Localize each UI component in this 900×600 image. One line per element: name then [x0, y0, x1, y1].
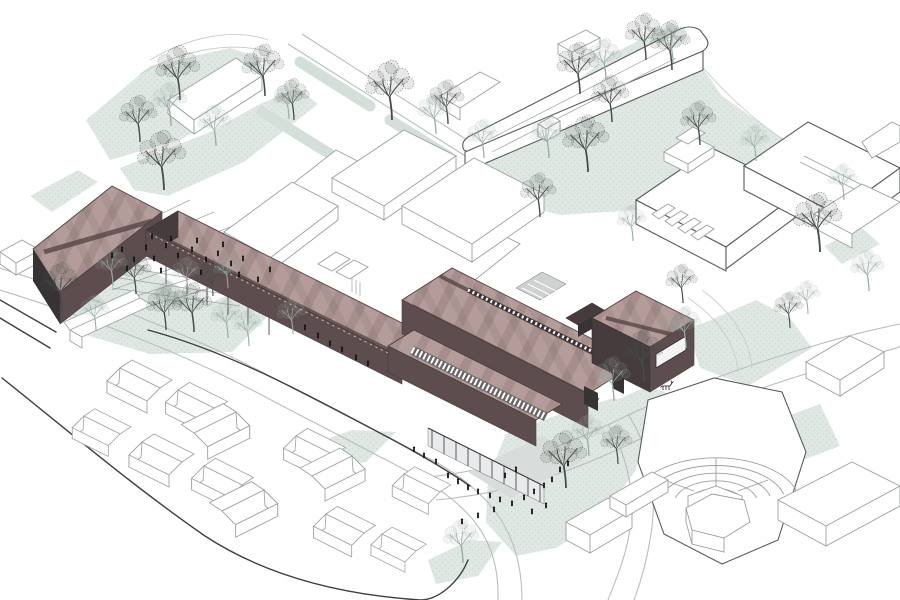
person-figure: [151, 234, 153, 240]
person-figure: [457, 479, 459, 485]
person-figure: [269, 267, 271, 273]
person-figure: [523, 495, 525, 501]
west-lane-b: [0, 318, 50, 348]
person-figure: [477, 489, 479, 495]
person-figure: [257, 277, 259, 283]
person-figure: [222, 242, 224, 248]
person-figure: [170, 236, 172, 242]
person-figure: [423, 453, 425, 459]
person-figure: [477, 513, 479, 519]
person-figure: [559, 467, 561, 473]
leaf-island-b: [428, 540, 502, 584]
axonometric-site-plan: [0, 0, 900, 600]
person-figure: [145, 245, 147, 251]
person-figure: [304, 325, 306, 331]
person-figure: [447, 473, 449, 479]
tree-icon: [666, 264, 698, 303]
person-figure: [165, 243, 167, 249]
person-figure: [533, 489, 535, 495]
village-house: [129, 434, 194, 487]
person-figure: [515, 467, 517, 473]
person-figure: [367, 361, 369, 367]
person-figure: [413, 447, 415, 453]
person-figure: [317, 333, 319, 339]
person-figure: [504, 473, 506, 479]
person-figure: [355, 355, 357, 361]
village-house: [314, 506, 376, 556]
person-figure: [111, 253, 113, 259]
person-figure: [545, 503, 547, 509]
person-figure: [543, 483, 545, 489]
person-figure: [493, 507, 495, 513]
village-houses: [72, 360, 451, 572]
person-figure: [467, 485, 469, 491]
person-figure: [329, 341, 331, 347]
village-house: [392, 467, 451, 515]
person-figure: [242, 256, 244, 262]
roof-deck: [516, 272, 566, 300]
tree-icon: [366, 60, 414, 120]
person-figure: [200, 270, 202, 276]
person-figure: [230, 261, 232, 267]
person-figure: [531, 509, 533, 515]
village-house: [72, 409, 131, 457]
person-figure: [217, 251, 219, 257]
person-figure: [461, 519, 463, 525]
person-figure: [121, 247, 123, 253]
person-figure: [205, 257, 207, 263]
person-figure: [551, 477, 553, 483]
person-figure: [160, 268, 162, 274]
person-figure: [126, 266, 128, 272]
person-figure: [191, 247, 193, 253]
person-figure: [153, 256, 155, 262]
person-figure: [511, 501, 513, 507]
village-house: [371, 527, 426, 572]
person-figure: [196, 238, 198, 244]
village-house: [107, 360, 172, 413]
person-figure: [341, 347, 343, 353]
person-figure: [133, 257, 135, 263]
person-figure: [177, 253, 179, 259]
person-figure: [238, 272, 240, 278]
site-illustration-canvas: [0, 0, 900, 600]
person-figure: [435, 459, 437, 465]
tree-icon: [793, 280, 820, 314]
person-figure: [567, 461, 569, 467]
person-figure: [499, 497, 501, 503]
person-figure: [489, 493, 491, 499]
